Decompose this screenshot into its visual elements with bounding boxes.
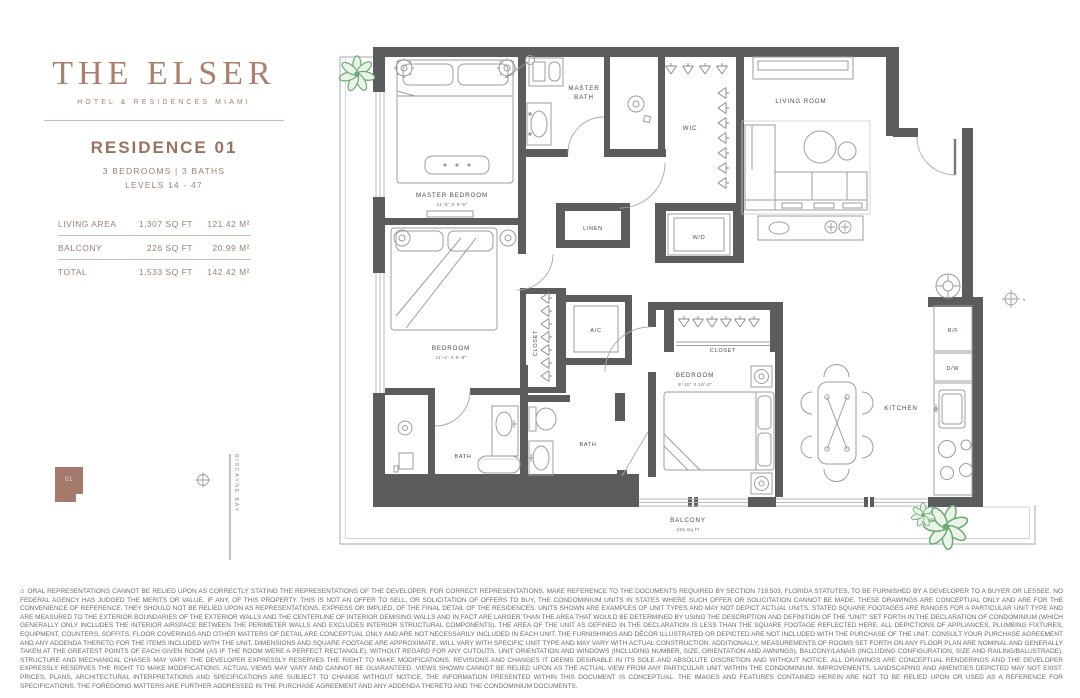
living-room-furniture xyxy=(742,57,870,240)
room-dim-bedroom3: 9'-10" X 10'-2" xyxy=(678,382,712,387)
room-label-closet3: CLOSET xyxy=(710,348,736,354)
equal-housing-icon: ⌂ xyxy=(20,586,25,595)
room-label-wic: WIC xyxy=(683,125,698,132)
room-dim-master-bedroom: 11'-5" X 9'-5" xyxy=(437,202,468,207)
room-label-ac: A/C xyxy=(590,328,601,334)
foyer-fixture-icon xyxy=(936,274,960,298)
bath2-fixtures xyxy=(528,407,556,475)
room-label-linen: LINEN xyxy=(583,226,603,232)
room-label-bedroom3: BEDROOM xyxy=(676,372,714,379)
compass-icon: N xyxy=(1002,290,1026,308)
kitchen-appliances xyxy=(934,306,973,495)
room-label-dw: D/W xyxy=(947,366,960,372)
compass-label: N xyxy=(1023,298,1026,302)
bedroom2-bed xyxy=(391,228,516,330)
room-label-bedroom2: BEDROOM xyxy=(432,345,470,352)
room-dim-bedroom2: 11'-4" X 9'-8" xyxy=(436,355,467,360)
room-label-master-bedroom: MASTER BEDROOM xyxy=(416,192,488,199)
room-label-rf: R/F xyxy=(948,328,959,334)
room-label-master-bath: MASTER xyxy=(568,85,599,92)
floorplan-brochure-page: THE ELSER HOTEL & RESIDENCES MIAMI RESID… xyxy=(0,0,1080,698)
room-label-living-room: LIVING ROOM xyxy=(775,98,826,105)
dresser xyxy=(427,211,473,217)
master-bath-fixtures xyxy=(527,58,563,145)
room-label-bath2: BATH xyxy=(579,442,596,448)
room-label-master-bath2: BATH xyxy=(574,94,594,101)
master-shower xyxy=(628,96,651,123)
disclaimer-text: ORAL REPRESENTATIONS CANNOT BE RELIED UP… xyxy=(20,588,1063,690)
room-dim-balcony: 226 Sq Ft xyxy=(676,527,699,532)
walls xyxy=(373,47,983,507)
room-label-wd: W/D xyxy=(693,235,706,241)
dining-set xyxy=(801,365,873,482)
room-label-kitchen: KITCHEN xyxy=(884,405,917,412)
master-bed xyxy=(397,60,513,183)
room-label-balcony: BALCONY xyxy=(670,517,706,524)
room-label-bath1: BATH xyxy=(454,454,471,460)
legal-disclaimer: ⌂ORAL REPRESENTATIONS CANNOT BE RELIED U… xyxy=(20,587,1063,691)
bedroom3-furniture xyxy=(664,342,774,494)
room-label-closet2: CLOSET xyxy=(533,330,539,356)
bath1-fixtures xyxy=(394,406,520,473)
furniture xyxy=(391,56,973,496)
